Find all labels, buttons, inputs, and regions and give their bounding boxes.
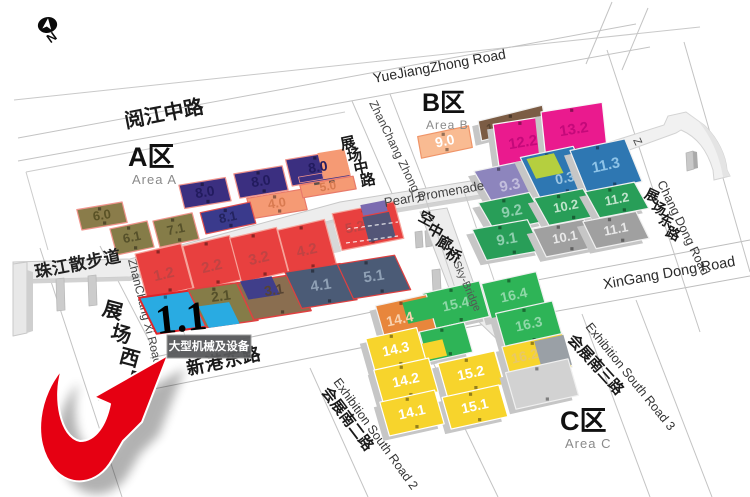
svg-text:8.0: 8.0 — [194, 182, 216, 201]
svg-text:8.0: 8.0 — [307, 157, 329, 176]
svg-text:B区: B区 — [422, 89, 465, 117]
svg-text:6.0: 6.0 — [92, 206, 112, 224]
svg-text:Area A: Area A — [132, 172, 177, 187]
svg-text:A区: A区 — [128, 142, 175, 172]
svg-text:2.1: 2.1 — [210, 286, 232, 305]
svg-text:8.0: 8.0 — [250, 171, 272, 190]
svg-text:4.1: 4.1 — [309, 275, 332, 295]
svg-text:C区: C区 — [560, 406, 607, 436]
svg-text:4.0: 4.0 — [267, 194, 287, 212]
svg-text:5.1: 5.1 — [362, 266, 385, 286]
svg-text:5.0: 5.0 — [318, 178, 337, 195]
svg-text:大型机械及设备: 大型机械及设备 — [169, 339, 250, 353]
svg-text:3.1: 3.1 — [263, 280, 285, 299]
svg-text:9.1: 9.1 — [495, 229, 518, 249]
svg-text:Area B: Area B — [426, 118, 469, 132]
svg-text:Area C: Area C — [565, 436, 611, 451]
